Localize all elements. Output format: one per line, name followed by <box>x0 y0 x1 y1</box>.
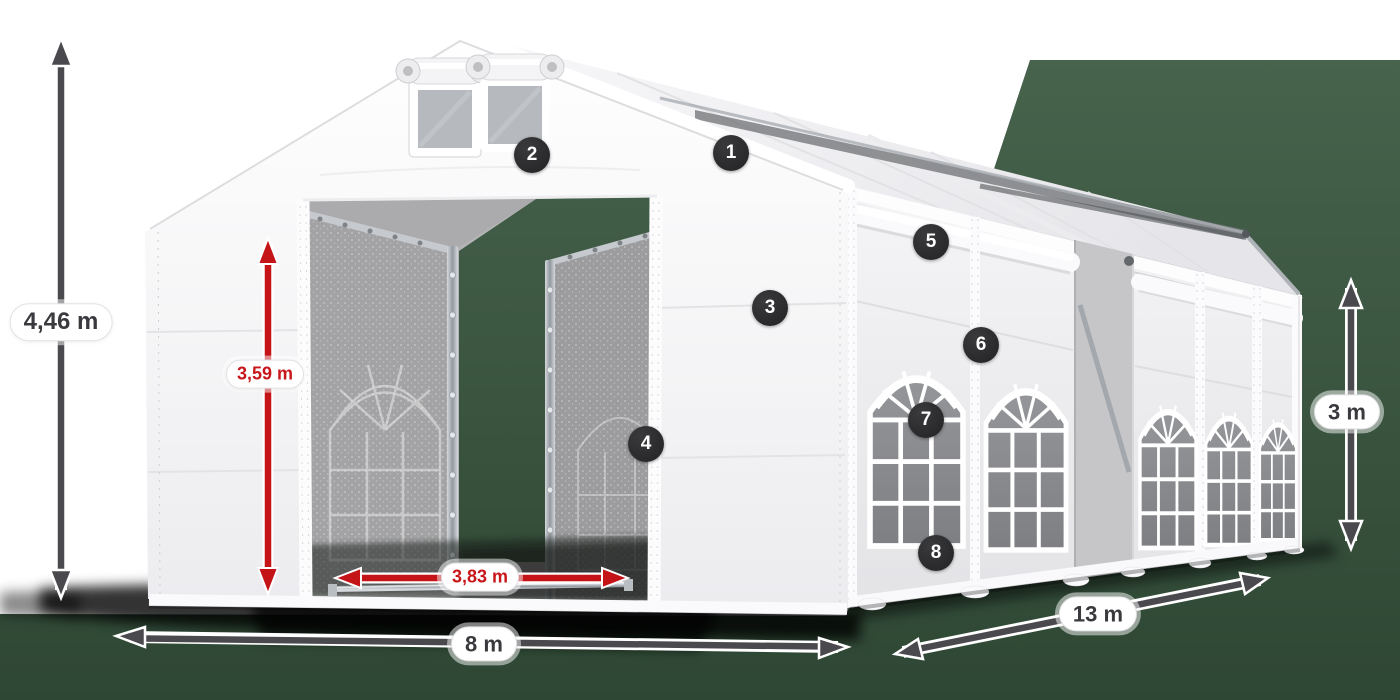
feature-marker-1[interactable]: 1 <box>713 135 749 171</box>
dimension-door-width-label: 3,83 m <box>441 563 519 592</box>
feature-marker-8[interactable]: 8 <box>918 535 954 571</box>
dimension-length-label: 13 m <box>1059 596 1137 631</box>
feature-marker-5[interactable]: 5 <box>913 224 949 260</box>
dimension-width-label: 8 m <box>451 626 517 661</box>
tent-dimension-diagram: 4,46 m 3,59 m 3,83 m 8 m 13 m 3 m 1 2 3 … <box>0 0 1400 700</box>
module-gap <box>1075 240 1133 579</box>
dimension-door-width-value: 3,83 m <box>452 567 508 587</box>
feature-marker-6[interactable]: 6 <box>963 327 999 363</box>
feature-marker-4[interactable]: 4 <box>628 426 664 462</box>
feature-marker-3[interactable]: 3 <box>752 290 788 326</box>
dimension-total-height-label: 4,46 m <box>10 303 113 341</box>
dimension-width-value: 8 m <box>465 631 503 656</box>
feature-marker-7[interactable]: 7 <box>908 402 944 438</box>
door-opening-interior <box>295 190 665 610</box>
tent-illustration <box>0 0 1400 700</box>
dimension-side-height-value: 3 m <box>1328 399 1366 424</box>
feature-marker-2[interactable]: 2 <box>514 137 550 173</box>
dimension-length-value: 13 m <box>1073 601 1123 626</box>
dimension-side-height-label: 3 m <box>1314 394 1380 429</box>
dimension-door-height-value: 3,59 m <box>237 364 293 384</box>
dimension-door-height-label: 3,59 m <box>226 360 304 389</box>
dimension-total-height-value: 4,46 m <box>24 308 99 335</box>
